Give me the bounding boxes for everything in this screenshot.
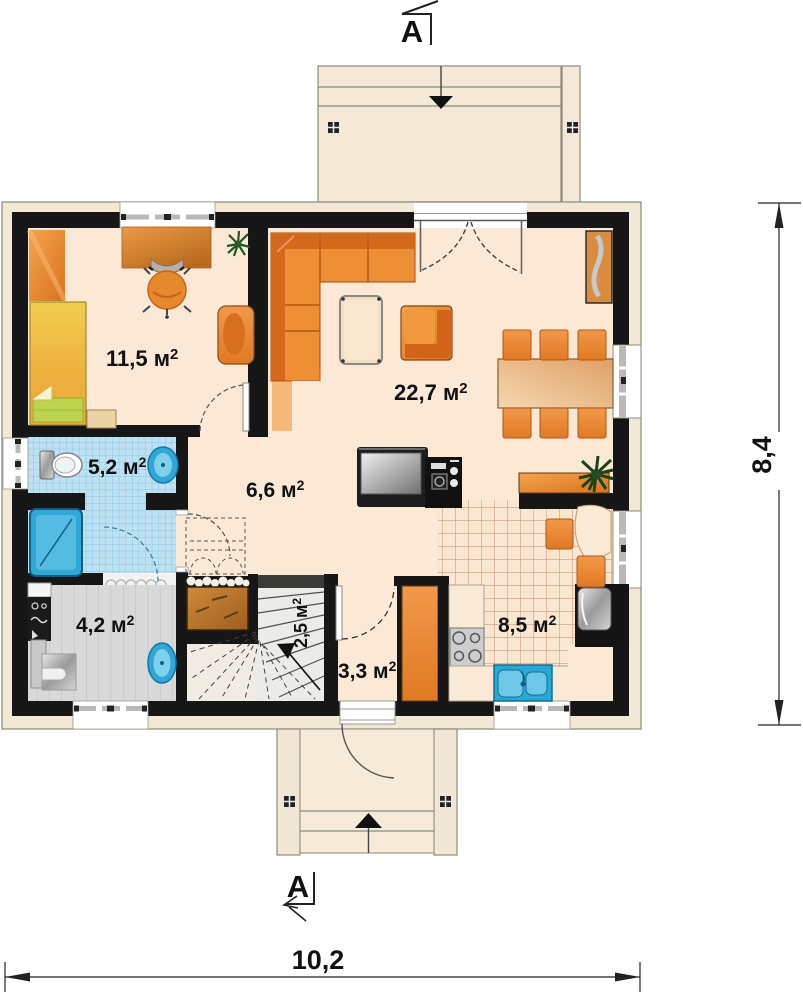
svg-text:A: A xyxy=(287,869,309,904)
svg-text:5,2 м2: 5,2 м2 xyxy=(88,454,147,479)
svg-text:8,5 м2: 8,5 м2 xyxy=(498,612,557,637)
svg-text:6,6 м2: 6,6 м2 xyxy=(246,477,305,502)
svg-text:22,7 м2: 22,7 м2 xyxy=(394,380,468,405)
svg-text:8,4: 8,4 xyxy=(747,436,777,474)
svg-text:11,5 м2: 11,5 м2 xyxy=(106,346,178,371)
svg-text:10,2: 10,2 xyxy=(292,945,345,975)
svg-text:A: A xyxy=(401,14,423,49)
svg-text:2,5 м2: 2,5 м2 xyxy=(290,598,311,648)
svg-text:4,2 м2: 4,2 м2 xyxy=(76,612,135,637)
svg-text:3,3 м2: 3,3 м2 xyxy=(338,658,397,683)
